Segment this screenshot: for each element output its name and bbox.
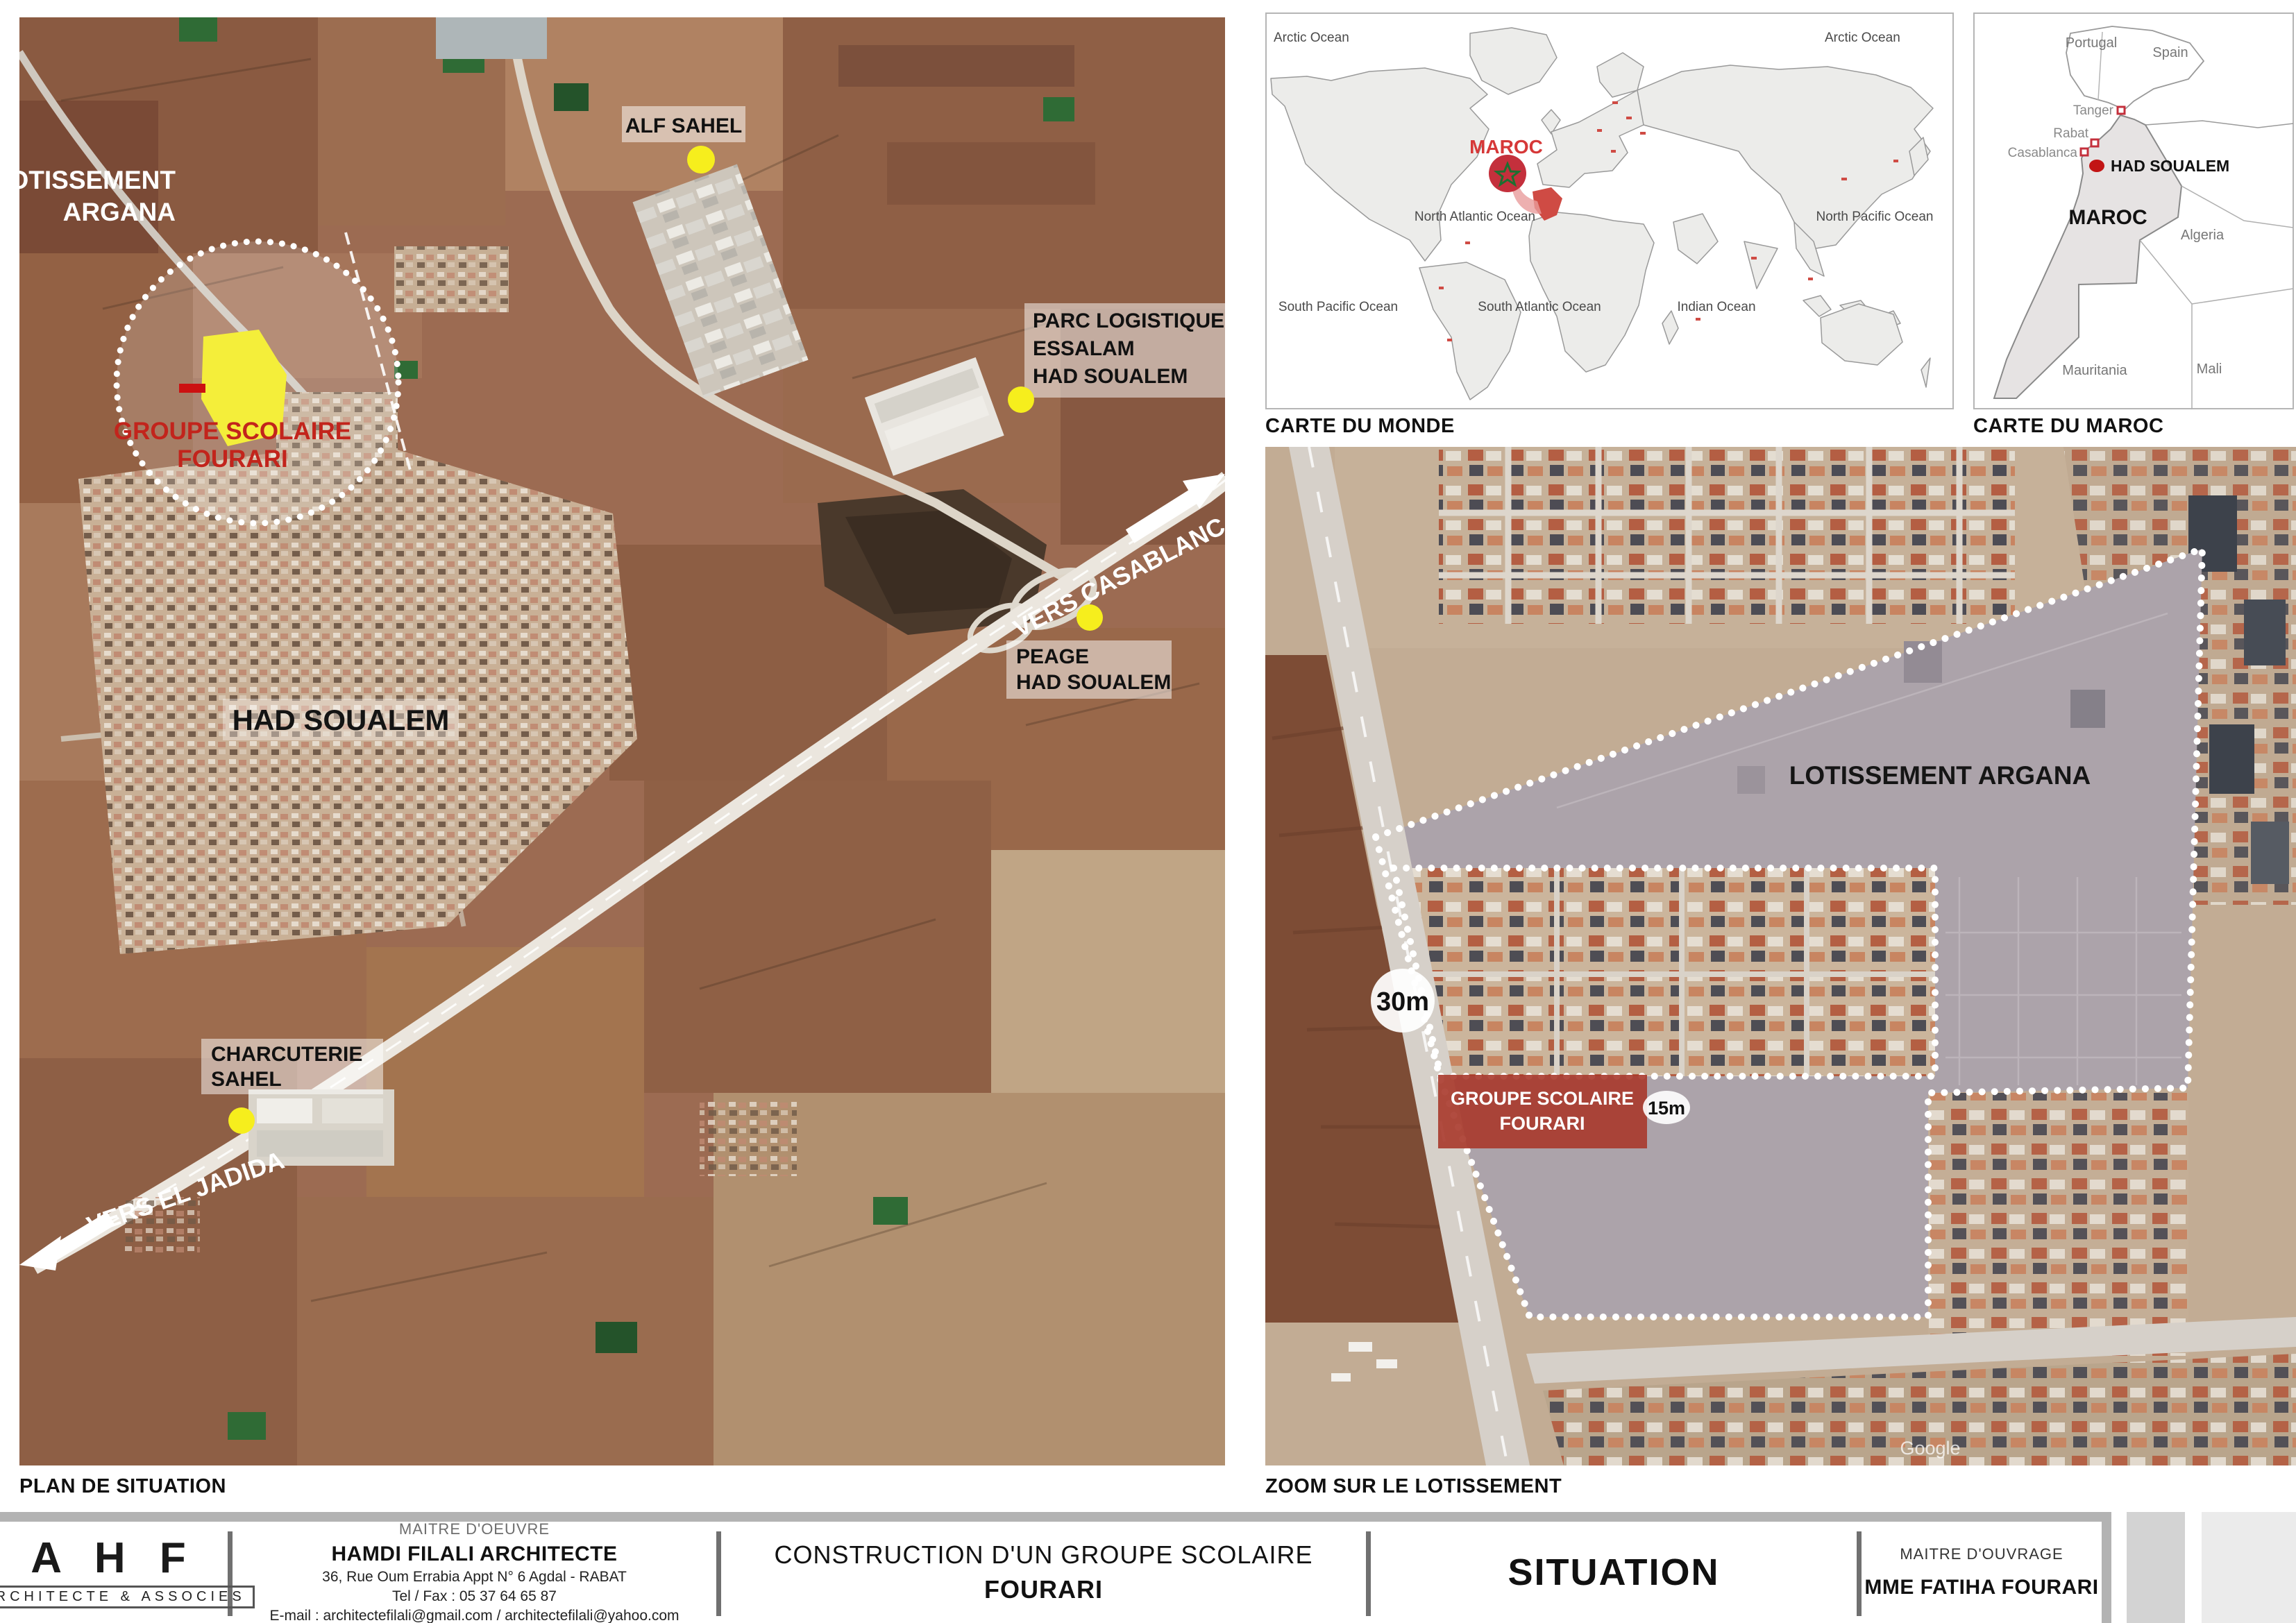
- project-title-line2: FOURARI: [984, 1575, 1103, 1604]
- road-width-label: 30m: [1376, 987, 1429, 1017]
- casablanca-label: Casablanca: [2008, 146, 2078, 160]
- plan-map-svg: LOTISSEMENT ARGANA GROUPE SCOLAIRE FOURA…: [19, 17, 1225, 1465]
- moa-label: MAITRE D'OUVRAGE: [1900, 1545, 2063, 1563]
- sheet-name: SITUATION: [1508, 1551, 1720, 1594]
- titleblock-gray-stripe: [2127, 1512, 2185, 1623]
- south-atlantic-label: South Atlantic Ocean: [1478, 300, 1601, 314]
- groupe-scolaire-label-1: GROUPE SCOLAIRE: [114, 418, 351, 445]
- lotissement-argana-label-2: ARGANA: [63, 198, 176, 226]
- zoom-caption: ZOOM SUR LE LOTISSEMENT: [1265, 1475, 1562, 1498]
- had-soualem-map-label: HAD SOUALEM: [2111, 157, 2229, 175]
- zoom-map-svg: GROUPE SCOLAIRE FOURARI 30m 15m LOTISSEM…: [1265, 447, 2296, 1465]
- maroc-flag-marker: [1489, 155, 1526, 192]
- titleblock-moe-section: MAITRE D'OEUVRE HAMDI FILALI ARCHITECTE …: [233, 1522, 716, 1623]
- arctic-ocean-right-label: Arctic Ocean: [1825, 31, 1900, 45]
- peage-label-1: PEAGE: [1016, 645, 1089, 668]
- plot-width-label: 15m: [1648, 1098, 1685, 1119]
- zoom-top-buildings: [1335, 447, 2098, 648]
- spain-label: Spain: [2152, 45, 2188, 60]
- ahf-logo-subtitle: ARCHITECTE & ASSOCIES: [0, 1586, 255, 1608]
- had-soualem-city-label: HAD SOUALEM: [233, 704, 450, 736]
- titleblock-divider-4: [1857, 1531, 1862, 1616]
- titleblock-top-bar: [0, 1512, 2111, 1522]
- rabat-label: Rabat: [2053, 126, 2088, 141]
- maroc-caption: CARTE DU MAROC: [1973, 415, 2163, 438]
- charcuterie-label-2: SAHEL: [211, 1068, 282, 1091]
- plan-caption: PLAN DE SITUATION: [19, 1475, 226, 1498]
- arctic-ocean-left-label: Arctic Ocean: [1274, 31, 1349, 45]
- tanger-label: Tanger: [2073, 103, 2114, 118]
- casablanca-marker: [2081, 148, 2088, 155]
- north-atlantic-label: North Atlantic Ocean: [1415, 210, 1535, 224]
- portugal-label: Portugal: [2066, 35, 2118, 51]
- groupe-scolaire-label-2: FOURARI: [177, 445, 287, 473]
- titleblock-sheet-section: SITUATION: [1371, 1522, 1857, 1623]
- alf-sahel-label: ALF SAHEL: [625, 114, 742, 137]
- plan-de-situation-map: LOTISSEMENT ARGANA GROUPE SCOLAIRE FOURA…: [19, 17, 1225, 1465]
- titleblock-light-stripe: [2202, 1512, 2296, 1623]
- moe-address: 36, Rue Oum Errabia Appt N° 6 Agdal - RA…: [322, 1569, 627, 1586]
- south-pacific-label: South Pacific Ocean: [1278, 300, 1398, 314]
- parc-label-1: PARC LOGISTIQUE: [1033, 309, 1224, 332]
- titleblock-project-section: CONSTRUCTION D'UN GROUPE SCOLAIRE FOURAR…: [721, 1522, 1366, 1623]
- school-plot-overlay: [1438, 1075, 1647, 1148]
- zoom-groupe-label-1: GROUPE SCOLAIRE: [1451, 1088, 1634, 1109]
- zoom-right-lower-cluster: [1928, 1093, 2188, 1356]
- moe-label: MAITRE D'OEUVRE: [399, 1520, 550, 1538]
- moe-tel: Tel / Fax : 05 37 64 65 87: [392, 1588, 557, 1605]
- parc-label-3: HAD SOUALEM: [1033, 365, 1188, 388]
- zoom-middle-block: [1394, 868, 1935, 1076]
- maroc-map-svg: Portugal Spain Tanger Rabat Casablanca H…: [1973, 12, 2294, 409]
- titleblock-logo-section: A H F ARCHITECTE & ASSOCIES: [0, 1522, 228, 1623]
- titleblock-moa-section: MAITRE D'OUVRAGE MME FATIHA FOURARI: [1862, 1522, 2102, 1623]
- carte-du-maroc-panel: Portugal Spain Tanger Rabat Casablanca H…: [1973, 12, 2294, 409]
- titleblock-divider-3: [1366, 1531, 1371, 1616]
- north-pacific-label: North Pacific Ocean: [1816, 210, 1934, 224]
- zoom-groupe-label-2: FOURARI: [1500, 1113, 1585, 1134]
- charcuterie-label-1: CHARCUTERIE: [211, 1043, 362, 1066]
- mali-label: Mali: [2197, 362, 2222, 377]
- parc-label-2: ESSALAM: [1033, 337, 1135, 360]
- algeria-label: Algeria: [2181, 228, 2225, 243]
- maroc-country-label: MAROC: [2068, 206, 2147, 229]
- titleblock: A H F ARCHITECTE & ASSOCIES MAITRE D'OEU…: [0, 1522, 2102, 1623]
- peage-poi-dot: [1077, 604, 1103, 631]
- monde-caption: CARTE DU MONDE: [1265, 415, 1455, 438]
- moe-name: HAMDI FILALI ARCHITECTE: [331, 1543, 617, 1566]
- titleblock-right-border: [2102, 1512, 2111, 1623]
- maroc-world-label: MAROC: [1469, 136, 1543, 158]
- parc-poi-dot: [1008, 386, 1034, 413]
- charcuterie-poi-dot: [228, 1107, 255, 1134]
- peage-label-2: HAD SOUALEM: [1016, 671, 1171, 694]
- drawing-sheet: LOTISSEMENT ARGANA GROUPE SCOLAIRE FOURA…: [0, 0, 2296, 1623]
- google-watermark: Google: [1900, 1438, 1960, 1459]
- project-title-line1: CONSTRUCTION D'UN GROUPE SCOLAIRE: [775, 1540, 1313, 1570]
- alf-sahel-poi-dot: [687, 146, 715, 173]
- school-red-parcel: [179, 384, 205, 393]
- had-soualem-marker: [2089, 160, 2104, 172]
- indian-ocean-label: Indian Ocean: [1677, 300, 1755, 314]
- zoom-lotissement-map: GROUPE SCOLAIRE FOURARI 30m 15m LOTISSEM…: [1265, 447, 2296, 1465]
- titleblock-divider-2: [716, 1531, 721, 1616]
- carte-du-monde-panel: Arctic Ocean Arctic Ocean North Atlantic…: [1265, 12, 1954, 409]
- zoom-lotissement-label: LOTISSEMENT ARGANA: [1789, 761, 2091, 790]
- rabat-marker: [2091, 139, 2098, 146]
- mauritania-label: Mauritania: [2062, 363, 2127, 378]
- moa-name: MME FATIHA FOURARI: [1864, 1576, 2098, 1599]
- moe-email: E-mail : architectefilali@gmail.com / ar…: [270, 1608, 679, 1623]
- ahf-logo: A H F: [31, 1537, 197, 1580]
- tanger-marker: [2118, 107, 2125, 114]
- lotissement-argana-label-1: LOTISSEMENT: [19, 166, 176, 194]
- world-map-svg: Arctic Ocean Arctic Ocean North Atlantic…: [1265, 12, 1954, 409]
